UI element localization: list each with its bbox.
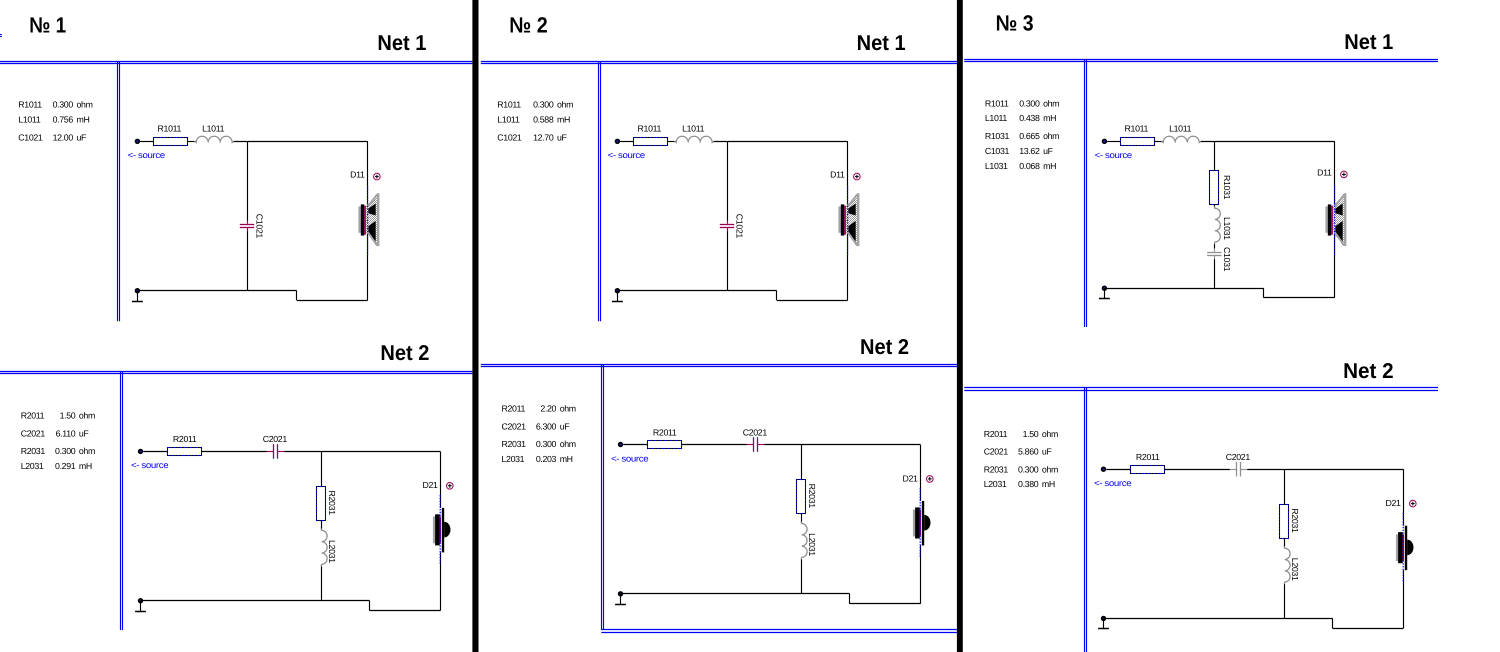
svg-text:L1031: L1031 (1222, 217, 1232, 240)
svg-text:ohm: ohm (560, 404, 576, 414)
svg-text:L1011: L1011 (682, 123, 705, 133)
svg-text:R2011: R2011 (502, 404, 526, 414)
svg-text:12.70: 12.70 (533, 133, 554, 143)
svg-text:13.62: 13.62 (1019, 146, 1040, 156)
svg-text:0.300: 0.300 (1018, 464, 1039, 474)
svg-text:C1021: C1021 (735, 214, 745, 239)
svg-text:R2011: R2011 (984, 429, 1008, 439)
svg-text:uF: uF (560, 421, 571, 431)
svg-text:ohm: ohm (79, 411, 95, 421)
svg-text:C1031: C1031 (985, 146, 1010, 156)
svg-text:6.300: 6.300 (536, 421, 557, 431)
svg-text:0.380: 0.380 (1018, 479, 1039, 489)
svg-text:5.860: 5.860 (1018, 447, 1039, 457)
svg-text:R2031: R2031 (984, 464, 1009, 474)
svg-text:C2021: C2021 (743, 427, 768, 437)
svg-text:ohm: ohm (1042, 464, 1058, 474)
svg-text:L1031: L1031 (985, 161, 1008, 171)
svg-text:L2031: L2031 (502, 454, 525, 464)
svg-text:0.203: 0.203 (536, 454, 557, 464)
svg-text:L1011: L1011 (985, 113, 1008, 123)
svg-text:L2031: L2031 (327, 540, 337, 563)
svg-text:L2031: L2031 (21, 461, 44, 471)
svg-text:Net 1: Net 1 (1344, 30, 1393, 54)
svg-text:№ 3: № 3 (996, 10, 1034, 35)
svg-text:mH: mH (557, 115, 570, 125)
svg-text:R2011: R2011 (1136, 452, 1160, 462)
svg-text:uF: uF (79, 428, 90, 438)
svg-text:uF: uF (557, 133, 568, 143)
svg-text:<- source: <- source (611, 453, 649, 463)
svg-text:<- source: <- source (128, 150, 166, 160)
svg-text:D21: D21 (423, 480, 439, 490)
svg-text:12.00: 12.00 (53, 133, 74, 143)
svg-text:R2011: R2011 (21, 411, 45, 421)
svg-text:D11: D11 (830, 170, 845, 180)
svg-text:C2021: C2021 (984, 447, 1009, 457)
svg-text:D11: D11 (350, 170, 365, 180)
svg-text:6.110: 6.110 (56, 428, 76, 438)
svg-text:ohm: ohm (557, 100, 573, 110)
svg-text:C2021: C2021 (502, 421, 527, 431)
svg-text:Net 1: Net 1 (857, 31, 906, 55)
svg-text:L1011: L1011 (1169, 123, 1192, 133)
svg-text:Net 2: Net 2 (860, 335, 909, 359)
svg-text:ohm: ohm (1043, 99, 1059, 109)
svg-text:R2011: R2011 (653, 427, 677, 437)
svg-text:uF: uF (1043, 146, 1054, 156)
svg-text:R1031: R1031 (1222, 175, 1232, 200)
svg-text:D11: D11 (1317, 167, 1332, 177)
svg-text:C2021: C2021 (21, 428, 46, 438)
svg-text:1.50: 1.50 (1023, 429, 1039, 439)
svg-text:ohm: ohm (1043, 131, 1059, 141)
svg-text:R2031: R2031 (21, 446, 46, 456)
svg-text:<- source: <- source (131, 460, 169, 470)
svg-text:L2031: L2031 (807, 533, 817, 556)
svg-text:№ 2: № 2 (509, 12, 548, 37)
svg-text:uF: uF (1042, 447, 1053, 457)
svg-text:№ 1: № 1 (29, 12, 66, 37)
svg-text:0.300: 0.300 (55, 446, 76, 456)
svg-text:uF: uF (77, 133, 88, 143)
svg-text:0.300: 0.300 (533, 100, 554, 110)
svg-text:0.756: 0.756 (53, 115, 74, 125)
svg-text:mH: mH (77, 115, 90, 125)
svg-text:C1021: C1021 (497, 133, 522, 143)
svg-text:R1031: R1031 (985, 131, 1010, 141)
svg-text:L2031: L2031 (1290, 558, 1300, 581)
svg-text:R1011: R1011 (638, 123, 662, 133)
svg-text:R2031: R2031 (327, 491, 337, 516)
svg-text:Net 2: Net 2 (1343, 359, 1394, 383)
svg-text:C1031: C1031 (1222, 247, 1232, 272)
svg-text:Net 1: Net 1 (377, 31, 426, 55)
svg-text:C1021: C1021 (255, 214, 265, 239)
svg-text:ohm: ohm (560, 439, 576, 449)
svg-text:ohm: ohm (79, 446, 95, 456)
svg-text:R2031: R2031 (1290, 508, 1300, 533)
svg-text:mH: mH (1043, 161, 1056, 171)
svg-text:C2021: C2021 (263, 434, 288, 444)
svg-text:0.588: 0.588 (533, 115, 554, 125)
svg-text:L2031: L2031 (984, 479, 1007, 489)
svg-text:0.300: 0.300 (1019, 99, 1040, 109)
svg-text:0.291: 0.291 (55, 461, 76, 471)
svg-text:0.300: 0.300 (53, 100, 74, 110)
svg-text:0.665: 0.665 (1019, 131, 1040, 141)
svg-text:<- source: <- source (1095, 150, 1133, 160)
svg-text:L1011: L1011 (202, 123, 225, 133)
svg-text:ohm: ohm (77, 100, 93, 110)
svg-text:mH: mH (1043, 113, 1056, 123)
svg-text:D21: D21 (1386, 498, 1402, 508)
svg-text:R1011: R1011 (1125, 123, 1149, 133)
svg-text:R2031: R2031 (807, 484, 817, 509)
svg-text:R1011: R1011 (158, 123, 182, 133)
svg-text:C2021: C2021 (1226, 452, 1251, 462)
svg-text:1.50: 1.50 (60, 411, 76, 421)
svg-text:R1011: R1011 (985, 99, 1009, 109)
svg-text:L1011: L1011 (18, 115, 41, 125)
svg-text:2.20: 2.20 (540, 404, 556, 414)
svg-text:0.068: 0.068 (1019, 161, 1040, 171)
svg-text:0.300: 0.300 (536, 439, 557, 449)
svg-text:R2011: R2011 (173, 434, 197, 444)
svg-text:0.438: 0.438 (1019, 113, 1040, 123)
svg-text:L1011: L1011 (497, 115, 520, 125)
svg-text:C1021: C1021 (18, 133, 43, 143)
svg-text:R1011: R1011 (18, 100, 42, 110)
svg-text:ohm: ohm (1042, 429, 1058, 439)
svg-text:D21: D21 (903, 473, 919, 483)
svg-text:R1011: R1011 (497, 100, 521, 110)
svg-text:Net 2: Net 2 (380, 341, 429, 365)
svg-text:<- source: <- source (608, 150, 646, 160)
svg-text:mH: mH (1042, 479, 1055, 489)
svg-text:R2031: R2031 (502, 439, 527, 449)
svg-text:<- source: <- source (1094, 478, 1132, 488)
svg-text:mH: mH (560, 454, 573, 464)
svg-text:mH: mH (79, 461, 92, 471)
